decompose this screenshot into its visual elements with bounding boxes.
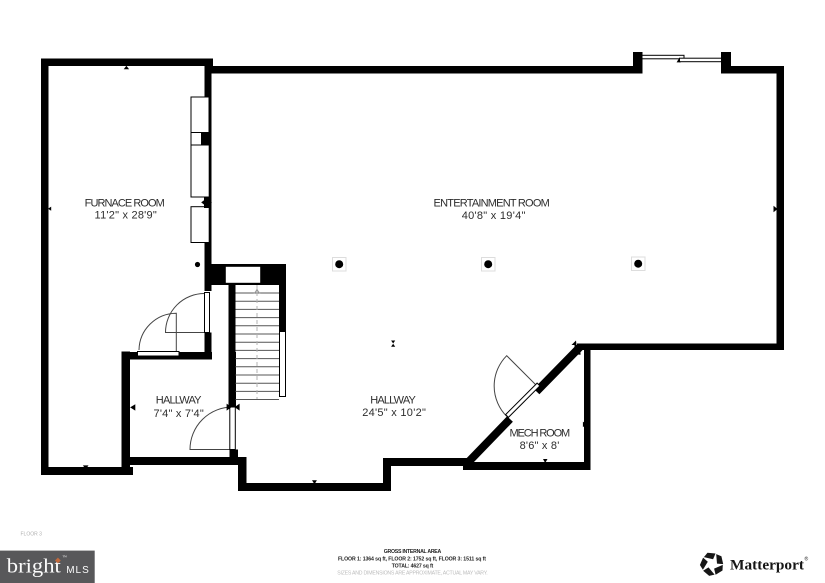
svg-text:40'8" x 19'4": 40'8" x 19'4" [462,210,526,222]
svg-text:HALLWAY: HALLWAY [370,395,416,407]
svg-text:bright: bright [7,556,61,578]
svg-text:11'2" x 28'9": 11'2" x 28'9" [95,210,158,222]
svg-text:MLS: MLS [66,565,90,576]
svg-text:Matterport: Matterport [730,558,804,574]
svg-text:ENTERTAINMENT ROOM: ENTERTAINMENT ROOM [434,198,551,210]
svg-text:SIZES AND DIMENSIONS ARE APPRO: SIZES AND DIMENSIONS ARE APPROXIMATE, AC… [337,571,488,577]
svg-text:GROSS INTERNAL AREA: GROSS INTERNAL AREA [384,549,442,555]
svg-text:8'6" x 8': 8'6" x 8' [520,440,560,452]
svg-text:TOTAL: 4627 sq ft: TOTAL: 4627 sq ft [392,563,434,569]
svg-text:™: ™ [63,554,68,559]
svg-text:FLOOR 3: FLOOR 3 [21,532,43,538]
svg-text:®: ® [805,556,809,563]
svg-text:7'4" x 7'4": 7'4" x 7'4" [154,408,205,420]
svg-text:24'5" x 10'2": 24'5" x 10'2" [362,407,426,419]
svg-text:MECH ROOM: MECH ROOM [510,428,571,440]
svg-text:FURNACE ROOM: FURNACE ROOM [85,198,165,210]
svg-text:FLOOR 1: 1364 sq ft, FLOOR 2:: FLOOR 1: 1364 sq ft, FLOOR 2: 1752 sq ft… [338,557,486,563]
svg-text:HALLWAY: HALLWAY [156,394,202,406]
